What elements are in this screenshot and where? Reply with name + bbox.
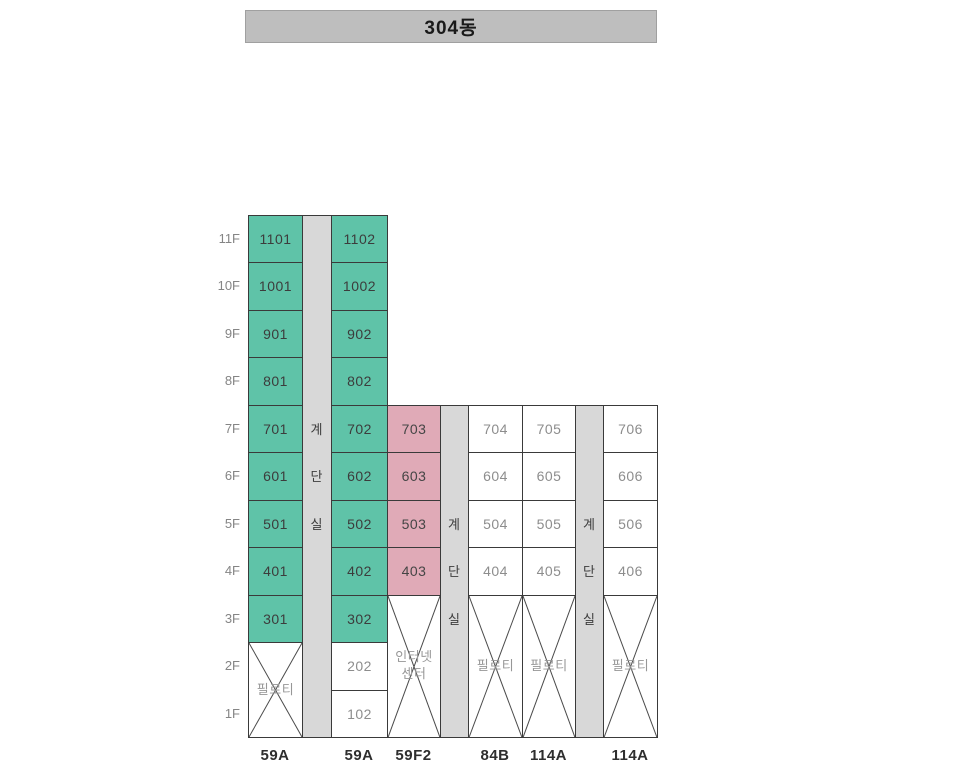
stairwell-1-label-2: 단 — [302, 452, 331, 500]
unit-cell-403[interactable]: 403 — [387, 547, 441, 596]
unit-cell-1001[interactable]: 1001 — [248, 262, 303, 311]
type-label-1: 59A — [228, 747, 322, 765]
floor-label-5f: 5F — [194, 500, 240, 548]
stairwell-2-label-3: 실 — [440, 595, 468, 643]
floor-label-1f: 1F — [194, 690, 240, 738]
type-label-6: 114A — [583, 747, 677, 765]
unit-cell-802[interactable]: 802 — [331, 357, 388, 406]
piloti-cell: 필로티 — [468, 595, 523, 739]
piloti-cell-label: 필로티 — [257, 682, 294, 699]
unit-cell-901[interactable]: 901 — [248, 310, 303, 359]
unit-cell-706[interactable]: 706 — [603, 405, 658, 454]
stairwell-1-label-3: 실 — [302, 500, 331, 548]
unit-cell-504[interactable]: 504 — [468, 500, 523, 549]
floor-label-10f: 10F — [194, 262, 240, 310]
unit-cell-603[interactable]: 603 — [387, 452, 441, 501]
unit-cell-102[interactable]: 102 — [331, 690, 388, 739]
unit-cell-902[interactable]: 902 — [331, 310, 388, 359]
unit-cell-704[interactable]: 704 — [468, 405, 523, 454]
unit-cell-505[interactable]: 505 — [522, 500, 576, 549]
unit-cell-202[interactable]: 202 — [331, 642, 388, 691]
floor-label-9f: 9F — [194, 310, 240, 358]
unit-cell-705[interactable]: 705 — [522, 405, 576, 454]
unit-cell-406[interactable]: 406 — [603, 547, 658, 596]
piloti-cell: 필로티 — [248, 642, 303, 738]
type-label-3: 59F2 — [367, 747, 460, 765]
stairwell-3-label-3: 실 — [575, 595, 603, 643]
stairwell-2-label-1: 계 — [440, 500, 468, 548]
floor-label-2f: 2F — [194, 642, 240, 690]
unit-cell-601[interactable]: 601 — [248, 452, 303, 501]
floor-label-8f: 8F — [194, 357, 240, 405]
unit-cell-402[interactable]: 402 — [331, 547, 388, 596]
stairwell-3-label-2: 단 — [575, 547, 603, 595]
unit-cell-501[interactable]: 501 — [248, 500, 303, 549]
unit-cell-401[interactable]: 401 — [248, 547, 303, 596]
building-title-bar: 304동 — [245, 10, 657, 43]
building-stacking-plan: 304동 11F10F9F8F7F6F5F4F3F2F1F11011001901… — [0, 0, 954, 782]
stairwell-1-label-1: 계 — [302, 405, 331, 453]
piloti-cell-label: 필로티 — [477, 658, 514, 675]
floor-label-11f: 11F — [194, 215, 240, 263]
unit-cell-302[interactable]: 302 — [331, 595, 388, 644]
internet-center-cell-label: 인터넷 센터 — [395, 649, 432, 683]
piloti-cell-label: 필로티 — [530, 658, 567, 675]
unit-cell-1101[interactable]: 1101 — [248, 215, 303, 264]
stairwell-3-label-1: 계 — [575, 500, 603, 548]
unit-cell-503[interactable]: 503 — [387, 500, 441, 549]
type-label-5: 114A — [502, 747, 595, 765]
floor-label-7f: 7F — [194, 405, 240, 453]
unit-cell-301[interactable]: 301 — [248, 595, 303, 644]
unit-cell-405[interactable]: 405 — [522, 547, 576, 596]
piloti-cell: 필로티 — [603, 595, 658, 739]
internet-center-cell: 인터넷 센터 — [387, 595, 441, 739]
floor-label-3f: 3F — [194, 595, 240, 643]
unit-cell-1102[interactable]: 1102 — [331, 215, 388, 264]
stairwell-2-label-2: 단 — [440, 547, 468, 595]
unit-cell-606[interactable]: 606 — [603, 452, 658, 501]
building-title: 304동 — [424, 13, 477, 40]
unit-cell-604[interactable]: 604 — [468, 452, 523, 501]
unit-cell-1002[interactable]: 1002 — [331, 262, 388, 311]
unit-cell-801[interactable]: 801 — [248, 357, 303, 406]
unit-cell-702[interactable]: 702 — [331, 405, 388, 454]
unit-cell-605[interactable]: 605 — [522, 452, 576, 501]
piloti-cell: 필로티 — [522, 595, 576, 739]
floor-label-6f: 6F — [194, 452, 240, 500]
unit-cell-502[interactable]: 502 — [331, 500, 388, 549]
unit-cell-404[interactable]: 404 — [468, 547, 523, 596]
piloti-cell-label: 필로티 — [612, 658, 649, 675]
unit-cell-602[interactable]: 602 — [331, 452, 388, 501]
unit-cell-506[interactable]: 506 — [603, 500, 658, 549]
unit-cell-701[interactable]: 701 — [248, 405, 303, 454]
unit-cell-703[interactable]: 703 — [387, 405, 441, 454]
floor-label-4f: 4F — [194, 547, 240, 595]
